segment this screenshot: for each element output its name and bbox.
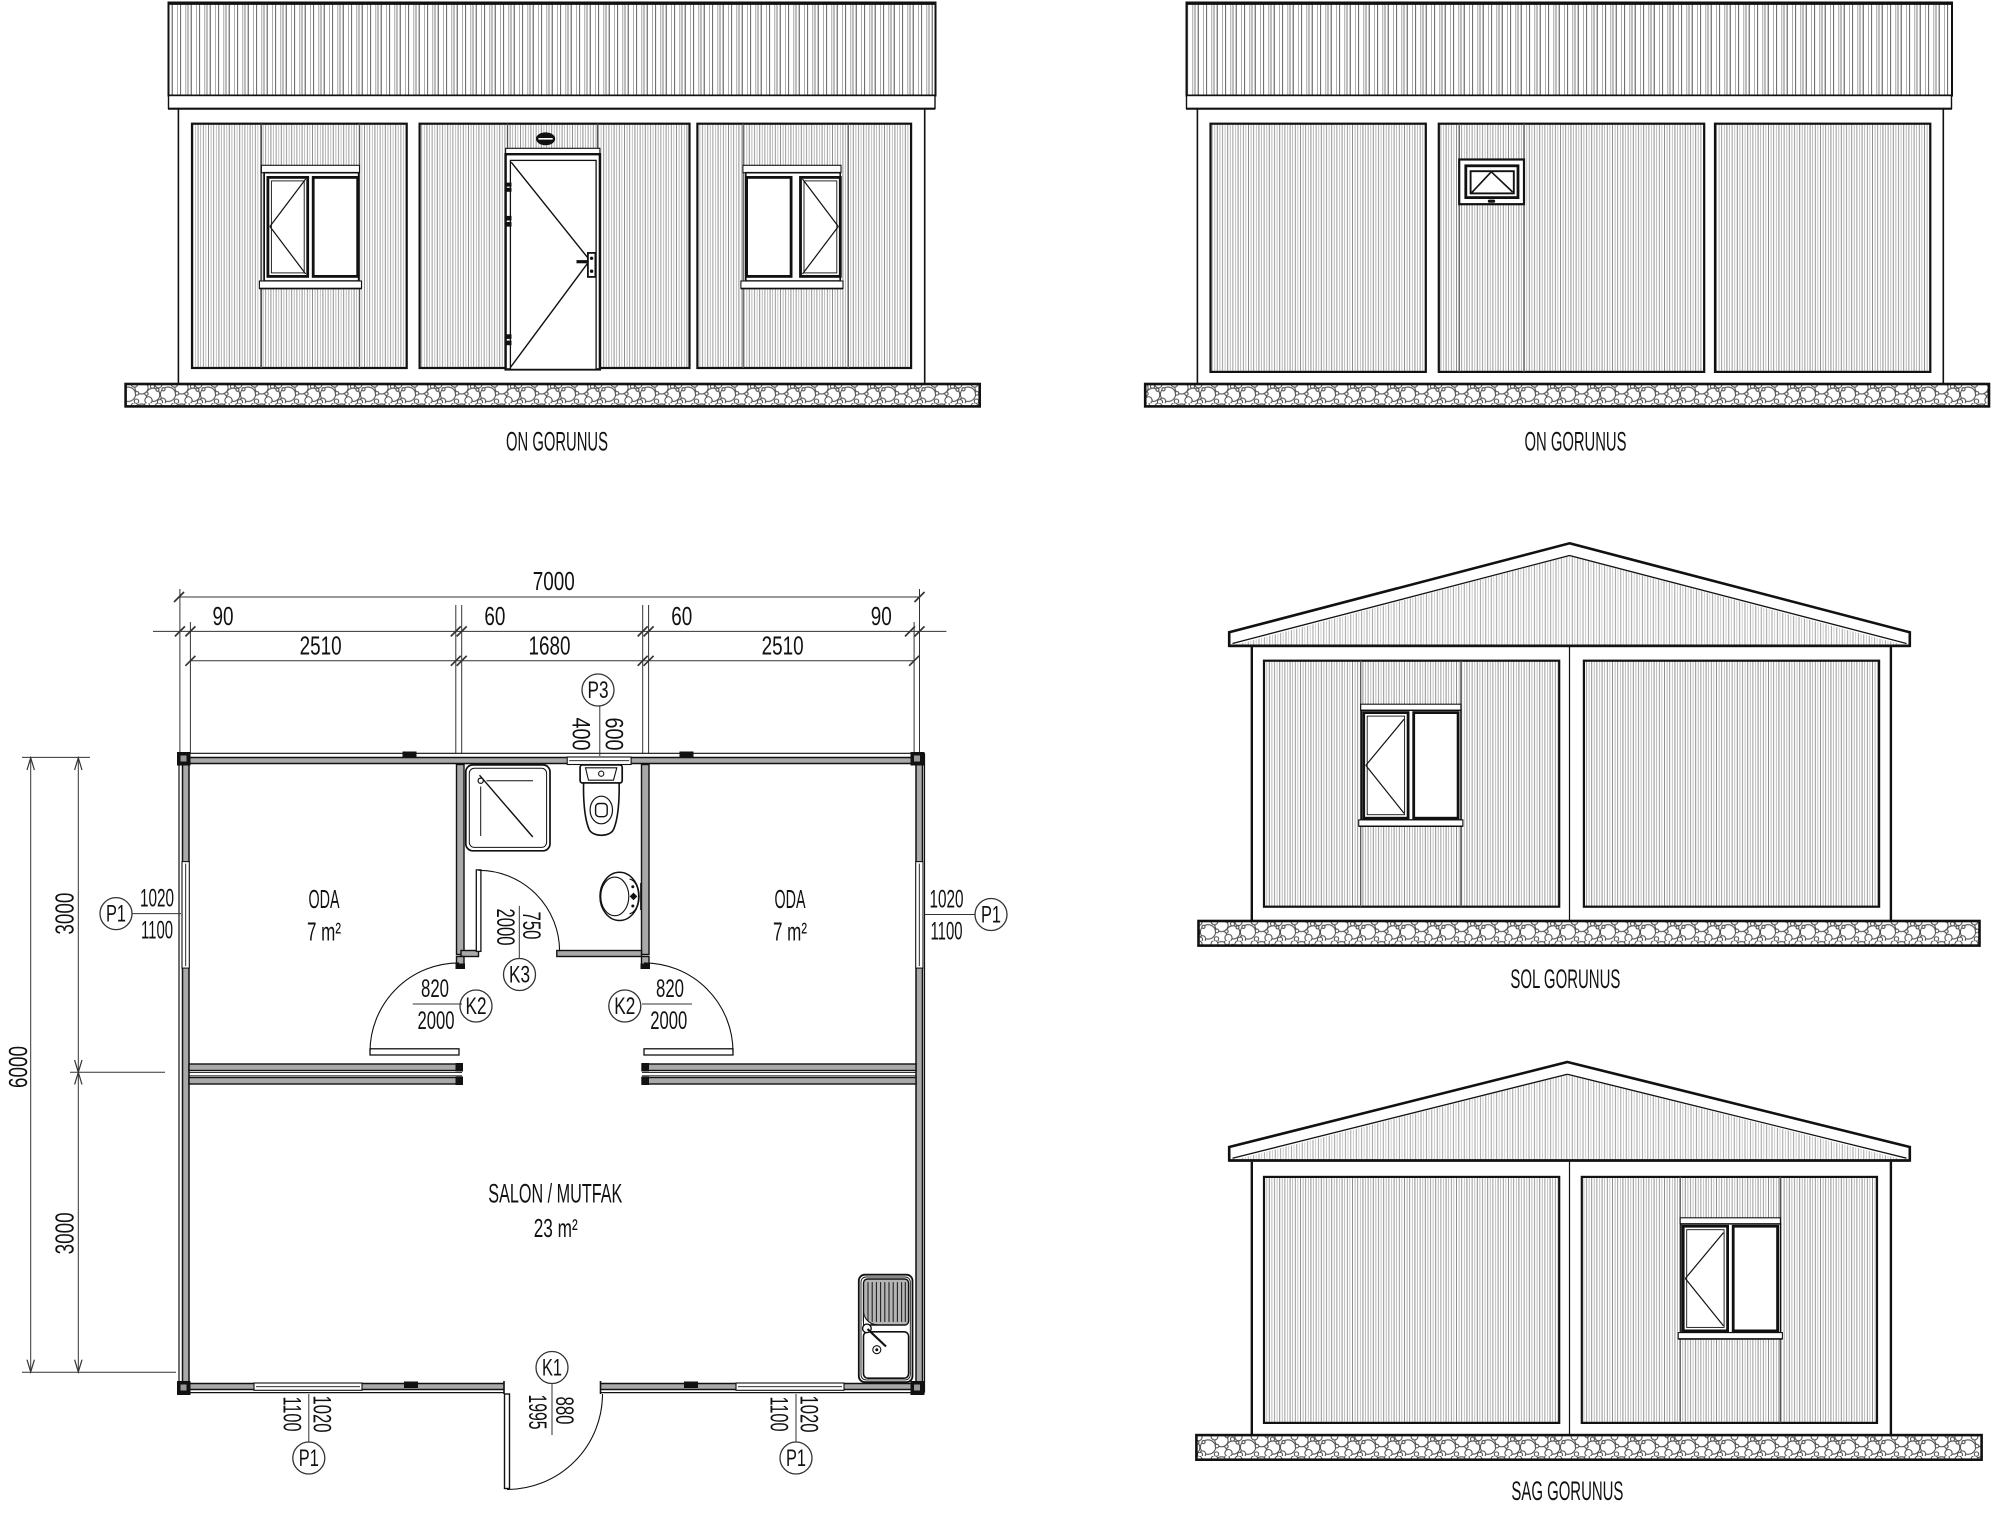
svg-text:1100: 1100 bbox=[141, 917, 173, 945]
svg-text:3000: 3000 bbox=[50, 893, 80, 935]
svg-text:K1: K1 bbox=[542, 1354, 562, 1381]
svg-text:880: 880 bbox=[550, 1397, 578, 1425]
svg-text:1020: 1020 bbox=[140, 885, 174, 913]
svg-text:P1: P1 bbox=[106, 901, 126, 928]
svg-text:90: 90 bbox=[871, 601, 892, 631]
svg-text:23 m²: 23 m² bbox=[534, 1213, 578, 1243]
svg-text:820: 820 bbox=[421, 975, 449, 1003]
svg-text:2000: 2000 bbox=[650, 1007, 687, 1035]
svg-text:60: 60 bbox=[484, 601, 505, 631]
svg-text:2510: 2510 bbox=[300, 631, 342, 661]
svg-text:SOL GORUNUS: SOL GORUNUS bbox=[1510, 964, 1620, 994]
svg-text:1995: 1995 bbox=[523, 1395, 551, 1430]
svg-text:2000: 2000 bbox=[491, 909, 519, 946]
svg-text:1100: 1100 bbox=[931, 917, 963, 945]
svg-text:ON GORUNUS: ON GORUNUS bbox=[506, 427, 608, 457]
svg-text:6000: 6000 bbox=[3, 1046, 33, 1088]
svg-text:K3: K3 bbox=[509, 961, 530, 988]
svg-text:2510: 2510 bbox=[762, 631, 804, 661]
svg-text:1020: 1020 bbox=[930, 885, 964, 913]
svg-text:400: 400 bbox=[567, 718, 595, 751]
svg-text:820: 820 bbox=[656, 975, 684, 1003]
svg-text:SALON / MUTFAK: SALON / MUTFAK bbox=[488, 1179, 622, 1209]
svg-text:SAG GORUNUS: SAG GORUNUS bbox=[1511, 1476, 1623, 1506]
svg-text:P3: P3 bbox=[588, 677, 609, 704]
svg-text:1100: 1100 bbox=[765, 1397, 793, 1432]
svg-text:K2: K2 bbox=[466, 993, 487, 1020]
svg-text:7 m²: 7 m² bbox=[307, 917, 341, 947]
svg-text:90: 90 bbox=[213, 601, 234, 631]
svg-text:P1: P1 bbox=[786, 1445, 806, 1472]
svg-text:ODA: ODA bbox=[775, 884, 806, 914]
svg-text:K2: K2 bbox=[614, 993, 635, 1020]
svg-text:750: 750 bbox=[517, 912, 545, 940]
svg-text:1100: 1100 bbox=[278, 1397, 306, 1432]
svg-text:ON GORUNUS: ON GORUNUS bbox=[1525, 427, 1627, 457]
svg-text:600: 600 bbox=[600, 718, 628, 751]
svg-text:1680: 1680 bbox=[529, 631, 571, 661]
svg-text:P1: P1 bbox=[299, 1445, 319, 1472]
svg-text:3000: 3000 bbox=[50, 1212, 80, 1254]
svg-text:2000: 2000 bbox=[418, 1007, 455, 1035]
svg-text:7000: 7000 bbox=[533, 566, 575, 596]
svg-text:ODA: ODA bbox=[309, 884, 340, 914]
svg-text:60: 60 bbox=[671, 601, 692, 631]
svg-text:P1: P1 bbox=[981, 901, 1001, 928]
svg-text:7 m²: 7 m² bbox=[773, 917, 807, 947]
svg-text:1020: 1020 bbox=[308, 1396, 336, 1433]
svg-text:1020: 1020 bbox=[795, 1396, 823, 1433]
